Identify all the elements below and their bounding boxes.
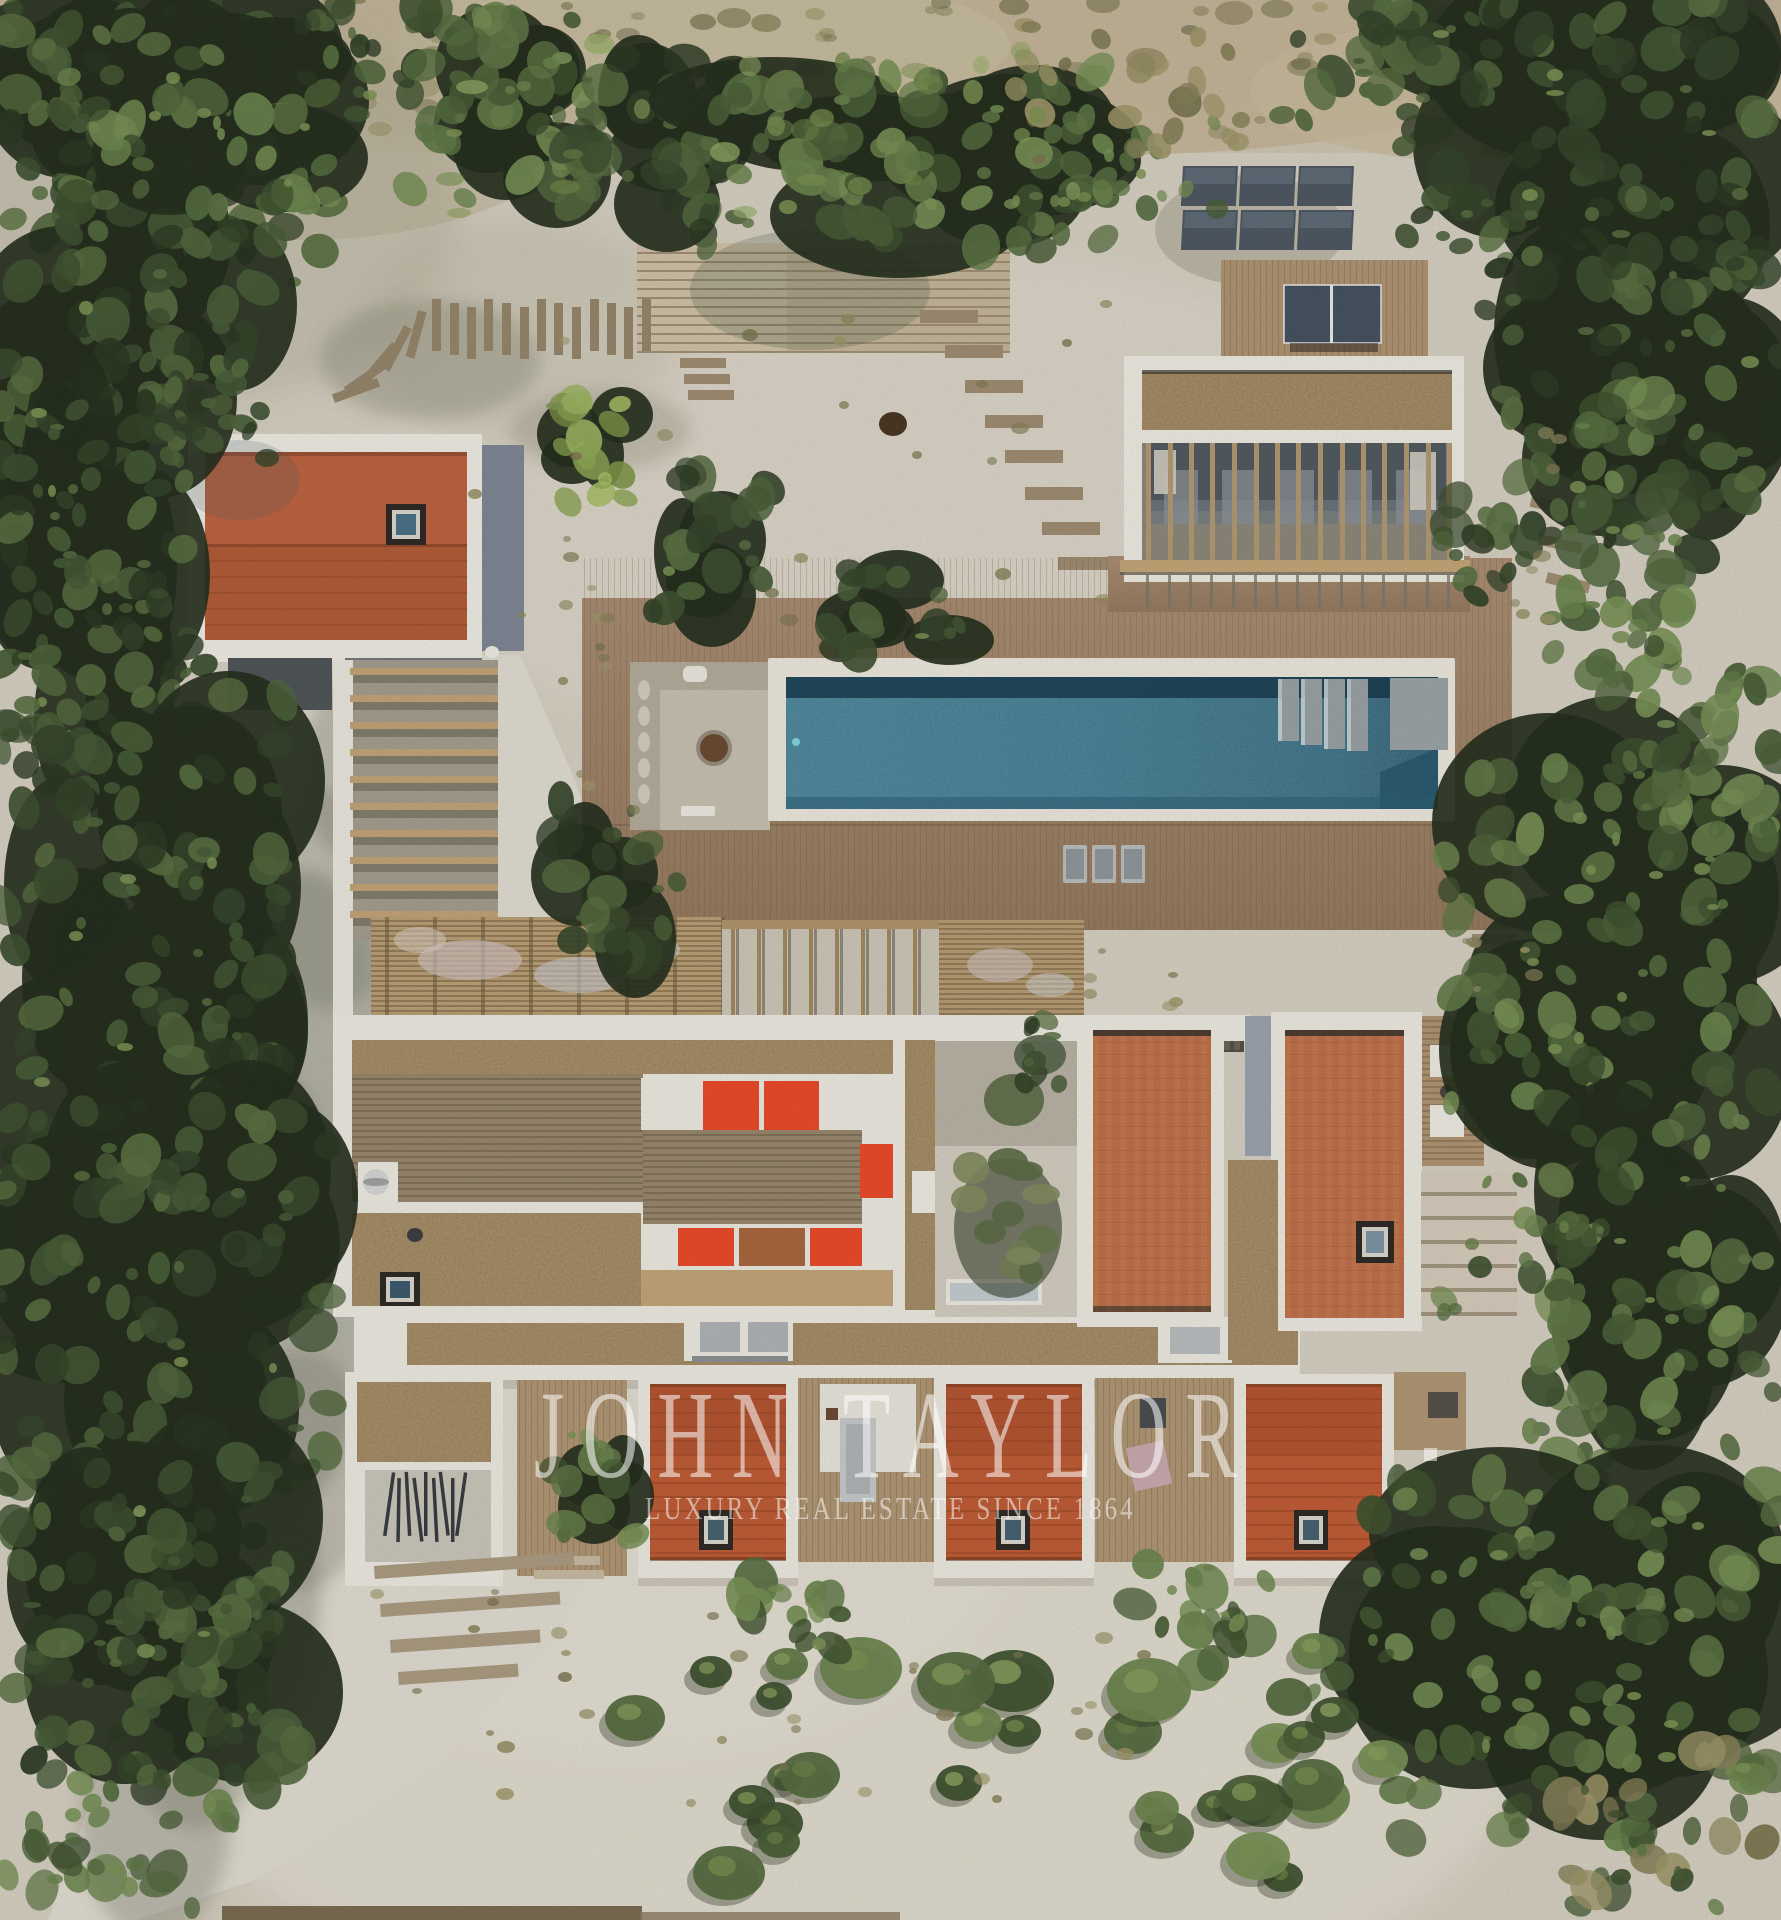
svg-text:LUXURY REAL ESTATE SINCE 1864: LUXURY REAL ESTATE SINCE 1864: [645, 1491, 1136, 1527]
svg-text:JOHN TAYLOR: JOHN TAYLOR: [534, 1366, 1256, 1504]
